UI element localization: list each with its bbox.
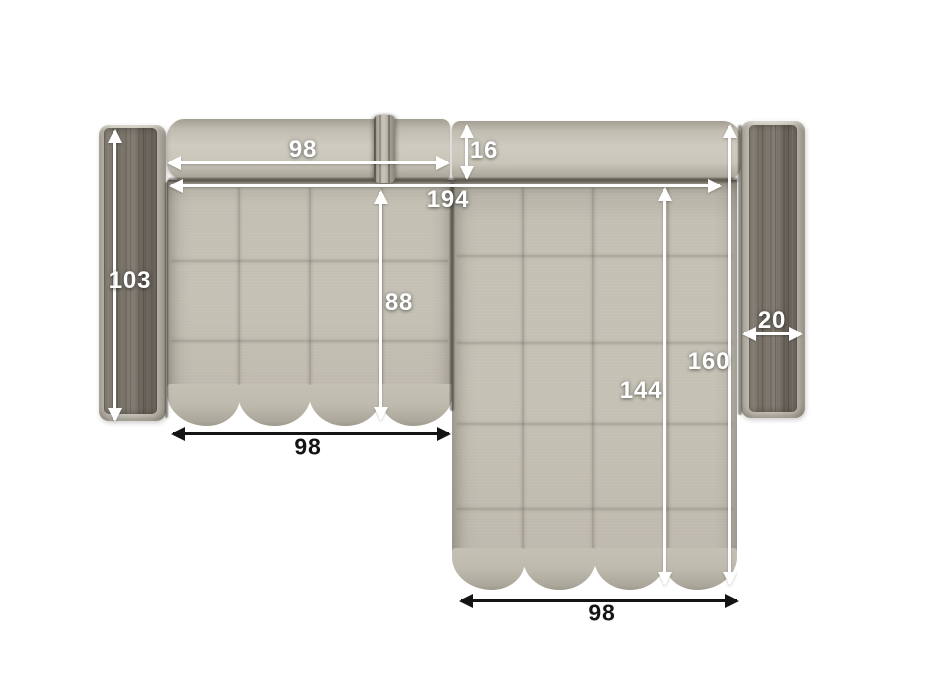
dim-back-depth-label: 16 (470, 137, 498, 165)
seat-seam (309, 188, 311, 396)
arrow-down-icon (108, 408, 122, 422)
arrow-left-icon (459, 594, 473, 608)
arrow-down-icon (658, 572, 672, 586)
arrow-down-icon (460, 166, 474, 180)
left-seat-front-scallops (167, 384, 453, 426)
arrow-left-icon (169, 179, 183, 193)
dim-chaise-total-length-label: 160 (688, 348, 730, 376)
dim-chaise-seat-length-line (663, 189, 666, 584)
arrow-down-icon (723, 572, 737, 586)
seat-divider-shadow (450, 183, 454, 411)
seat-bump (238, 384, 311, 426)
right-armrest-gap-shadow (738, 125, 742, 415)
seat-seam (457, 423, 732, 425)
seat-seam (592, 188, 594, 560)
arrow-up-icon (374, 190, 388, 204)
seat-bump (309, 384, 382, 426)
dim-inner-width-label: 194 (427, 186, 469, 214)
right-armrest-wood-panel (749, 125, 797, 412)
arrow-left-icon (167, 156, 181, 170)
dim-back-depth-line (465, 126, 468, 178)
dim-back-cushion-width-label: 98 (289, 136, 317, 164)
arrow-left-icon (742, 327, 756, 341)
chaise-front-scallops (452, 548, 737, 590)
arrow-up-icon (723, 124, 737, 138)
dim-armrest-width-label: 20 (758, 307, 786, 335)
arrow-up-icon (460, 124, 474, 138)
arrow-up-icon (108, 129, 122, 143)
arrow-right-icon (789, 327, 803, 341)
seat-bump (523, 548, 596, 590)
seat-bump (380, 384, 453, 426)
seat-seam (457, 342, 732, 344)
dim-chaise-seat-length-label: 144 (620, 377, 662, 405)
arrow-down-icon (374, 407, 388, 421)
dim-left-armrest-length-label: 103 (109, 267, 151, 295)
seat-seam (238, 188, 240, 396)
seat-bump (167, 384, 240, 426)
sofa-top-view-diagram: 98 16 194 103 88 160 144 20 98 (0, 0, 933, 700)
dim-chaise-width-label: 98 (588, 600, 615, 627)
arrow-right-icon (708, 179, 722, 193)
arrow-right-icon (725, 594, 739, 608)
backrest-shadow (168, 178, 738, 182)
arrow-right-icon (436, 156, 450, 170)
arrow-up-icon (658, 187, 672, 201)
seat-seam (457, 508, 732, 510)
backrest-strap (374, 115, 395, 183)
seat-bump (594, 548, 667, 590)
dim-left-seat-depth-line (379, 192, 382, 419)
seat-bump (452, 548, 525, 590)
dim-left-seat-width-label: 98 (294, 434, 321, 461)
arrow-right-icon (437, 427, 451, 441)
seat-seam (457, 255, 732, 257)
dim-left-seat-depth-label: 88 (385, 289, 413, 317)
seat-seam (522, 188, 524, 560)
seat-seam (172, 340, 448, 342)
right-armrest (741, 121, 805, 418)
arrow-left-icon (171, 427, 185, 441)
seat-seam (172, 260, 448, 262)
seat-seam (667, 188, 669, 560)
left-armrest-gap-shadow (165, 182, 168, 418)
